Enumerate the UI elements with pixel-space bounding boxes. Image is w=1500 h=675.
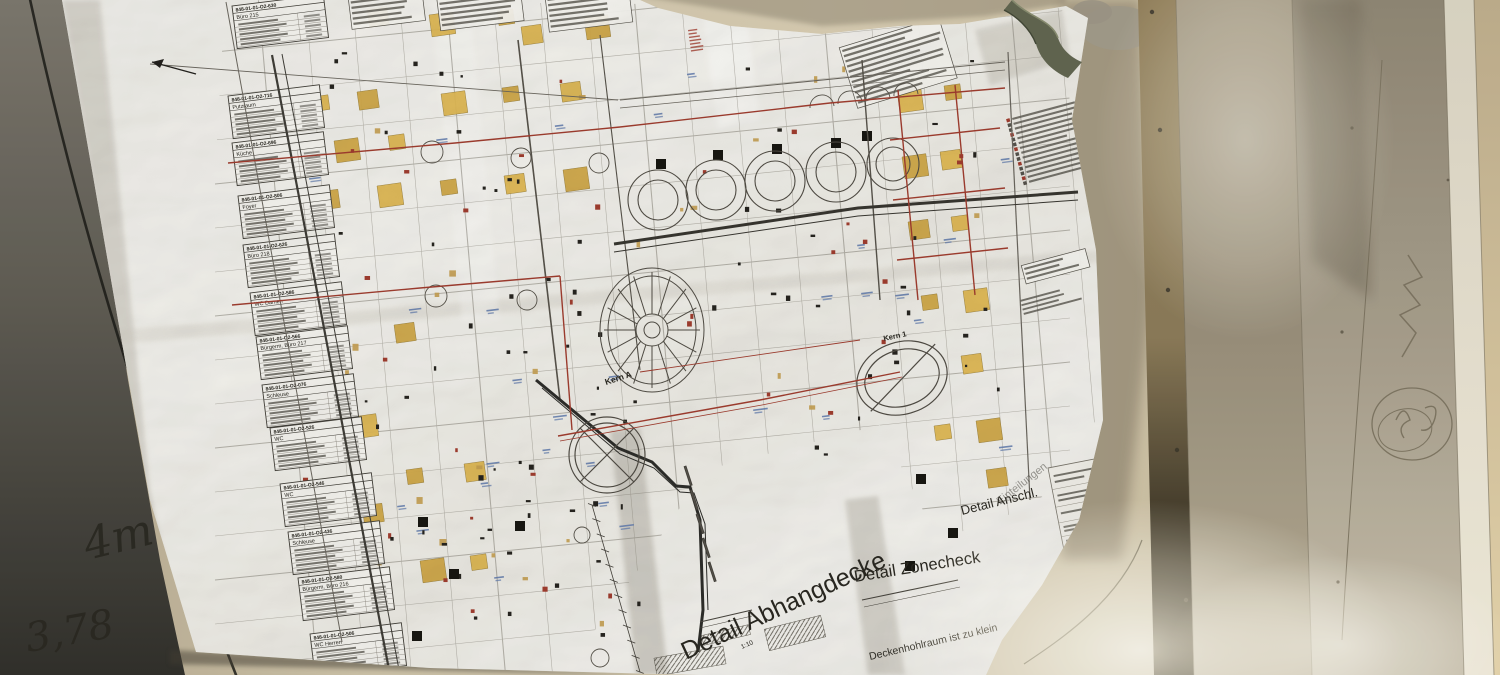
warm-tone-overlay <box>0 0 1500 675</box>
photo-construction-plan-on-wall: 4m 3,78 <box>0 0 1500 675</box>
scene-svg: 4m 3,78 <box>0 0 1500 675</box>
